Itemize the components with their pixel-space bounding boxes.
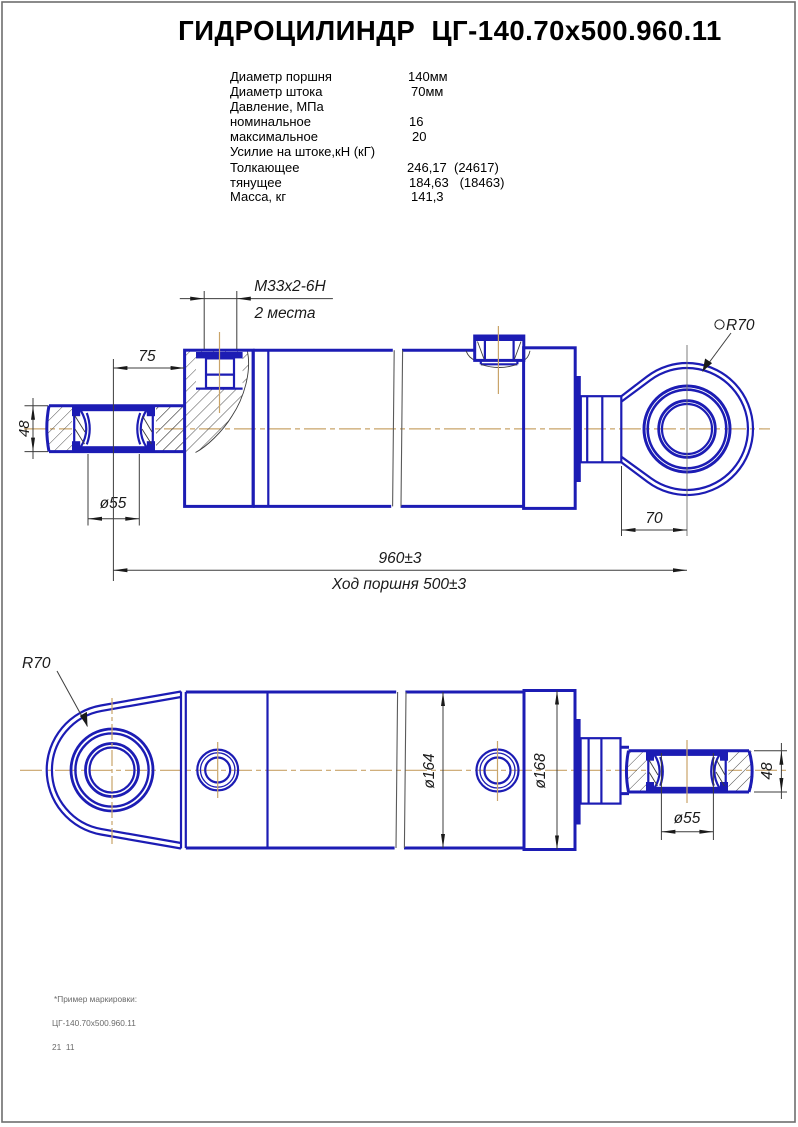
svg-text:70мм: 70мм: [411, 84, 443, 99]
svg-text:R70: R70: [726, 317, 755, 334]
svg-text:140мм: 140мм: [408, 69, 448, 84]
svg-text:16: 16: [409, 114, 423, 129]
svg-text:Усилие на штоке,кН (кГ): Усилие на штоке,кН (кГ): [230, 144, 375, 159]
svg-text:48: 48: [759, 762, 776, 780]
svg-text:Диаметр штока: Диаметр штока: [230, 84, 323, 99]
svg-text:48: 48: [16, 420, 33, 437]
svg-text:Толкающее: Толкающее: [230, 160, 299, 175]
svg-text:ГИДРОЦИЛИНДР ЦГ-140.70х500.96: ГИДРОЦИЛИНДР ЦГ-140.70х500.960.11: [178, 15, 722, 46]
svg-text:184,63 (18463): 184,63 (18463): [409, 175, 504, 190]
svg-text:2 места: 2 места: [253, 305, 315, 322]
svg-text:номинальное: номинальное: [230, 114, 311, 129]
svg-text:ЦГ-140.70х500.960.11: ЦГ-140.70х500.960.11: [52, 1018, 136, 1028]
svg-text:Диаметр поршня: Диаметр поршня: [230, 69, 332, 84]
svg-text:21 11: 21 11: [52, 1042, 75, 1052]
svg-text:75: 75: [138, 348, 156, 365]
svg-text:М33х2-6Н: М33х2-6Н: [254, 278, 326, 295]
svg-text:960±3: 960±3: [379, 550, 422, 567]
svg-text:ø55: ø55: [674, 810, 701, 827]
svg-text:*Пример маркировки:: *Пример маркировки:: [54, 994, 137, 1004]
svg-text:R70: R70: [22, 655, 51, 672]
svg-text:максимальное: максимальное: [230, 129, 318, 144]
svg-text:141,3: 141,3: [411, 189, 444, 204]
svg-text:тянущее: тянущее: [230, 175, 282, 190]
svg-text:70: 70: [645, 510, 663, 527]
svg-text:Масса, кг: Масса, кг: [230, 189, 286, 204]
svg-text:Ход поршня 500±3: Ход поршня 500±3: [331, 576, 467, 593]
svg-text:ø164: ø164: [421, 753, 438, 789]
svg-text:Давление, МПа: Давление, МПа: [230, 99, 325, 114]
svg-text:246,17 (24617): 246,17 (24617): [407, 160, 499, 175]
svg-text:20: 20: [412, 129, 426, 144]
svg-text:ø168: ø168: [532, 753, 549, 789]
